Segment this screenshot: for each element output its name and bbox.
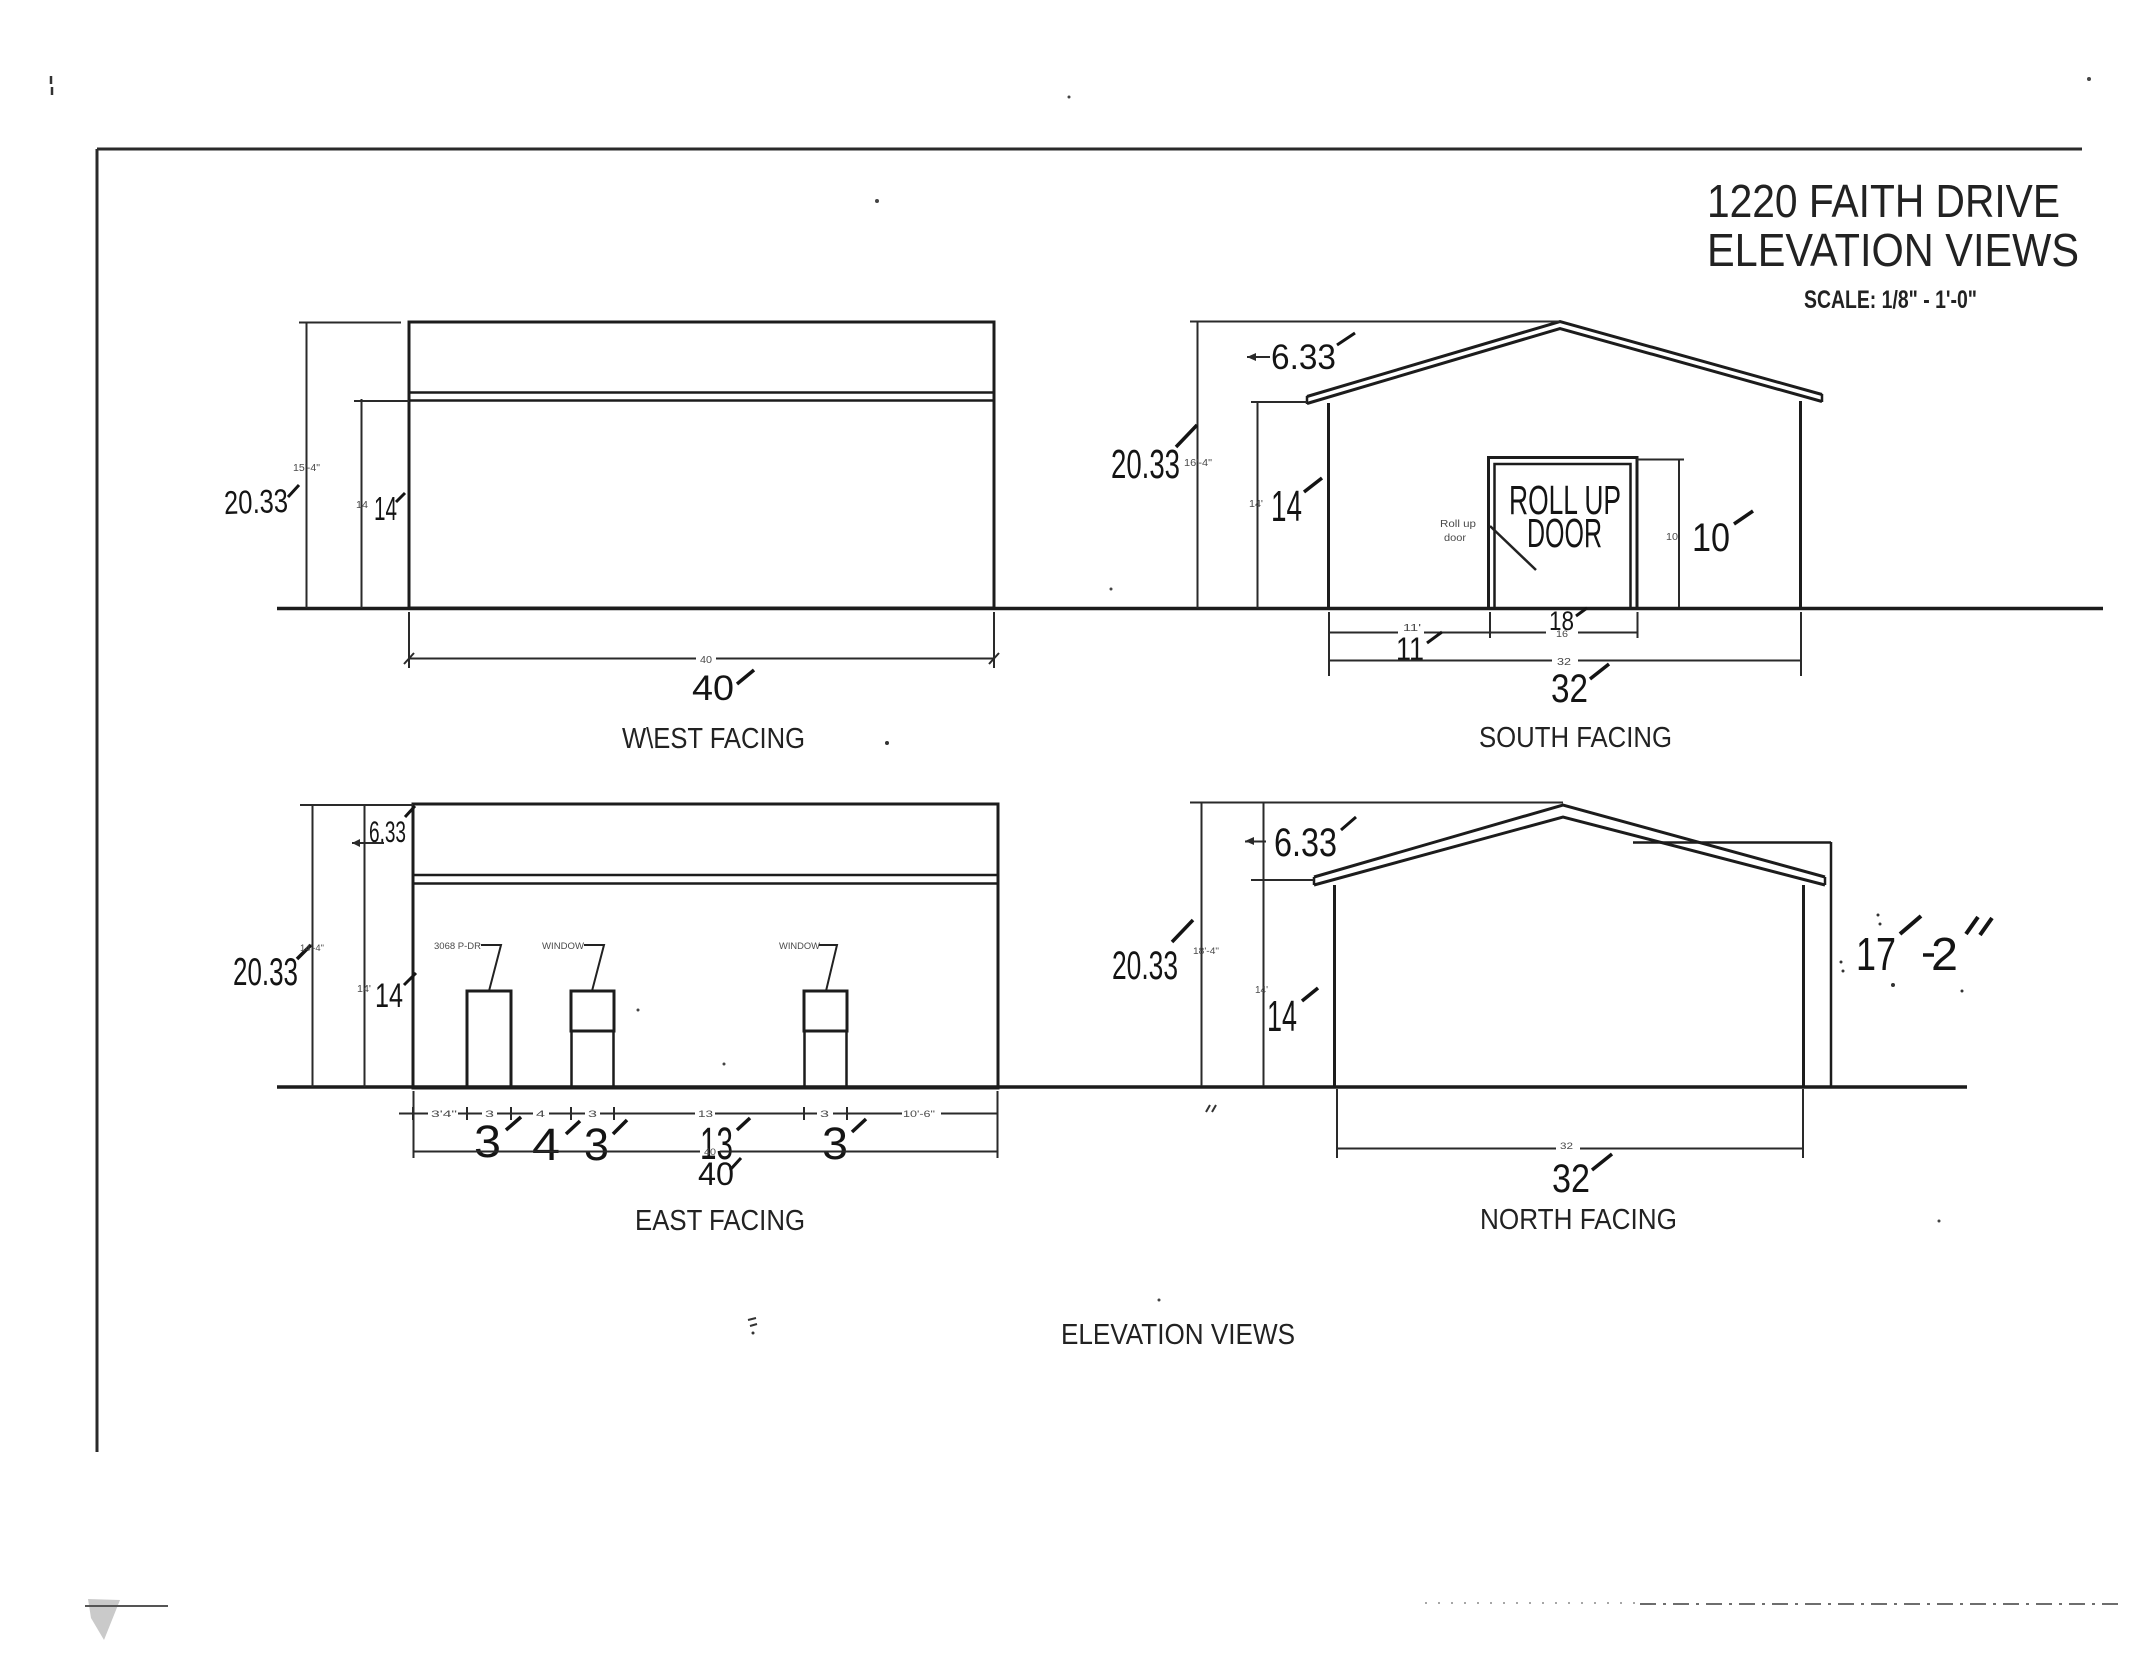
svg-text:4: 4 bbox=[532, 1119, 560, 1170]
svg-text:NORTH FACING: NORTH FACING bbox=[1480, 1204, 1677, 1236]
svg-text:40: 40 bbox=[698, 1156, 734, 1192]
svg-text:40: 40 bbox=[700, 655, 712, 666]
svg-text:32: 32 bbox=[1552, 1157, 1590, 1201]
svg-text:WINDOW: WINDOW bbox=[779, 941, 821, 951]
svg-text:16'-4": 16'-4" bbox=[1184, 458, 1212, 469]
svg-text:14: 14 bbox=[374, 490, 397, 527]
svg-text:20.33: 20.33 bbox=[1112, 944, 1178, 988]
svg-text:SCALE: 1/8" - 1'-0": SCALE: 1/8" - 1'-0" bbox=[1804, 286, 1977, 314]
svg-text:ELEVATION VIEWS: ELEVATION VIEWS bbox=[1707, 224, 2079, 276]
svg-text:door: door bbox=[1444, 533, 1467, 544]
svg-text:20.33: 20.33 bbox=[1111, 441, 1180, 487]
svg-text:14: 14 bbox=[1267, 992, 1297, 1041]
svg-text:15'-4": 15'-4" bbox=[293, 463, 320, 474]
svg-text:ELEVATION VIEWS: ELEVATION VIEWS bbox=[1061, 1319, 1295, 1351]
svg-text:6.33: 6.33 bbox=[369, 816, 406, 849]
svg-text:EAST FACING: EAST FACING bbox=[635, 1205, 805, 1237]
svg-text:3: 3 bbox=[584, 1119, 609, 1170]
svg-text:14': 14' bbox=[357, 984, 371, 995]
svg-text:40: 40 bbox=[692, 669, 734, 708]
svg-text:10'-6": 10'-6" bbox=[903, 1109, 935, 1119]
svg-text:3068 P-DR: 3068 P-DR bbox=[434, 941, 482, 951]
svg-text:14'-4": 14'-4" bbox=[300, 943, 324, 953]
svg-text:WINDOW: WINDOW bbox=[542, 941, 585, 951]
svg-text:1220 FAITH DRIVE: 1220 FAITH DRIVE bbox=[1707, 175, 2060, 227]
svg-text:17: 17 bbox=[1856, 928, 1896, 980]
svg-text:20.33: 20.33 bbox=[223, 482, 288, 521]
svg-text:11: 11 bbox=[1396, 631, 1424, 667]
svg-text:14: 14 bbox=[1271, 482, 1302, 531]
svg-text:DOOR: DOOR bbox=[1527, 510, 1602, 556]
svg-text:3: 3 bbox=[588, 1109, 597, 1119]
svg-text:3'4": 3'4" bbox=[431, 1109, 457, 1119]
svg-text:18'-4": 18'-4" bbox=[1193, 946, 1219, 956]
svg-text:W\EST FACING: W\EST FACING bbox=[622, 723, 805, 755]
svg-text:6.33: 6.33 bbox=[1271, 338, 1336, 377]
svg-text:18: 18 bbox=[1549, 606, 1574, 636]
svg-text:SOUTH FACING: SOUTH FACING bbox=[1479, 722, 1672, 754]
svg-text:4: 4 bbox=[536, 1109, 545, 1119]
svg-text:3: 3 bbox=[474, 1116, 501, 1167]
svg-text:14: 14 bbox=[356, 500, 368, 511]
svg-text:Roll up: Roll up bbox=[1440, 519, 1476, 530]
svg-text:32: 32 bbox=[1560, 1141, 1573, 1151]
svg-text:2: 2 bbox=[1931, 928, 1958, 980]
svg-text:14': 14' bbox=[1249, 499, 1263, 510]
svg-text:32: 32 bbox=[1551, 667, 1588, 711]
svg-text:10: 10 bbox=[1692, 516, 1730, 560]
svg-text:6.33: 6.33 bbox=[1274, 821, 1337, 865]
svg-text:3: 3 bbox=[822, 1118, 848, 1169]
svg-text:10: 10 bbox=[1666, 532, 1678, 543]
svg-text:20.33: 20.33 bbox=[233, 951, 298, 994]
svg-text:14: 14 bbox=[375, 977, 403, 1015]
